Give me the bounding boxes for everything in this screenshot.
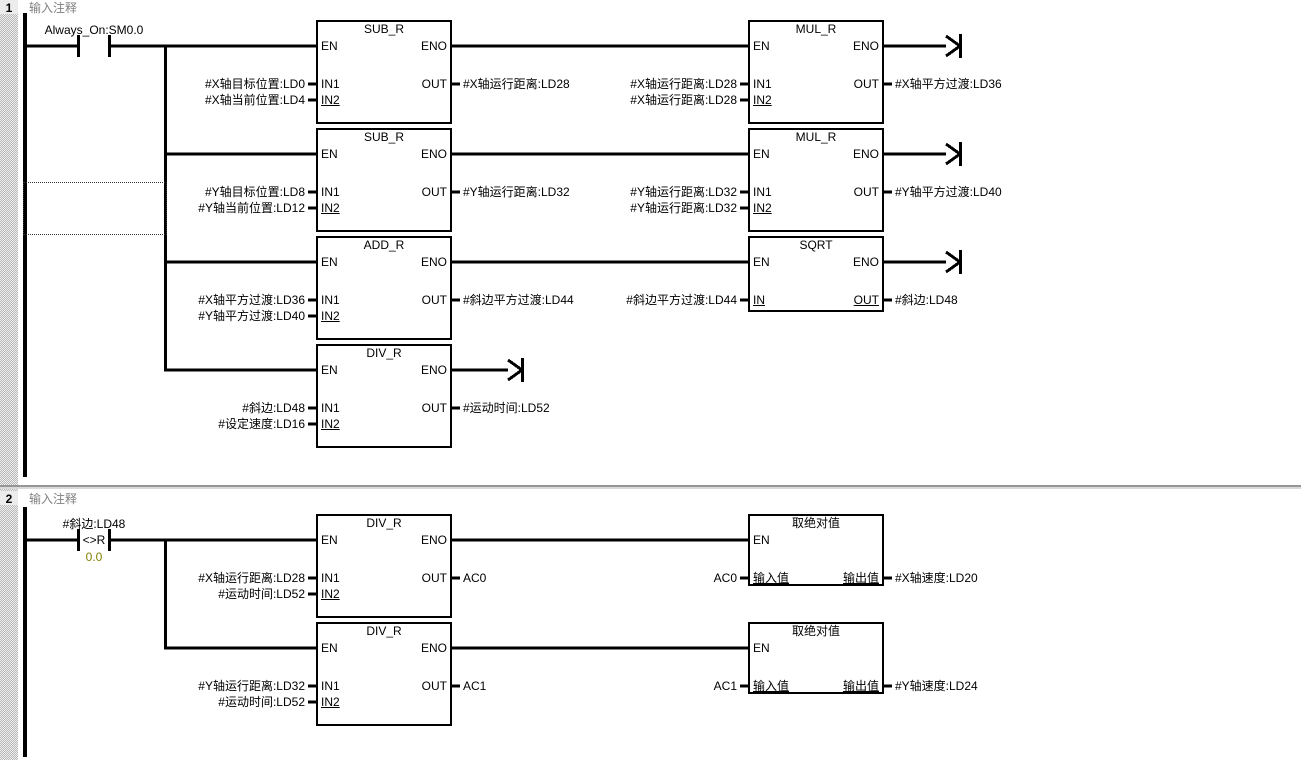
port-name: OUT	[127, 184, 447, 200]
port-name: OUT	[127, 678, 447, 694]
block-title: 取绝对值	[656, 515, 976, 531]
port-name: OUT	[127, 400, 447, 416]
input-operand[interactable]: #Y轴运行距离:LD32	[417, 200, 737, 216]
port-name: IN2	[321, 200, 340, 216]
output-operand[interactable]: #Y轴速度:LD24	[895, 678, 978, 694]
output-operand[interactable]: #运动时间:LD52	[463, 400, 550, 416]
port-eno: ENO	[127, 640, 447, 656]
block-title: 取绝对值	[656, 623, 976, 639]
block-title: ADD_R	[224, 237, 544, 253]
input-operand[interactable]: #运动时间:LD52	[0, 586, 305, 602]
port-name: IN2	[321, 92, 340, 108]
port-eno: ENO	[127, 146, 447, 162]
contact-operand[interactable]: Always_On:SM0.0	[0, 22, 254, 38]
input-operand[interactable]: #X轴当前位置:LD4	[0, 92, 305, 108]
block-title: SQRT	[656, 237, 976, 253]
output-operand[interactable]: #X轴速度:LD20	[895, 570, 978, 586]
compare-value[interactable]: 0.0	[0, 549, 254, 565]
port-eno: ENO	[127, 254, 447, 270]
diagram-nodes-layer: 1输入注释Always_On:SM0.0SUB_RENENOIN1#X轴目标位置…	[0, 0, 1301, 760]
port-eno: ENO	[559, 146, 879, 162]
ladder-editor-canvas: 1输入注释Always_On:SM0.0SUB_RENENOIN1#X轴目标位置…	[0, 0, 1301, 760]
block-title: SUB_R	[224, 129, 544, 145]
network-comment[interactable]: 输入注释	[29, 0, 77, 16]
port-name: 输出值	[559, 570, 879, 586]
input-operand[interactable]: #运动时间:LD52	[0, 694, 305, 710]
input-operand[interactable]: #设定速度:LD16	[0, 416, 305, 432]
selection-rectangle[interactable]	[23, 182, 167, 235]
block-title: DIV_R	[224, 515, 544, 531]
port-name: IN2	[321, 586, 340, 602]
port-eno: ENO	[559, 38, 879, 54]
port-en: EN	[753, 640, 770, 656]
port-name: OUT	[127, 292, 447, 308]
port-name: 输出值	[559, 678, 879, 694]
contact-operand[interactable]: #斜边:LD48	[0, 516, 254, 532]
output-operand[interactable]: #Y轴平方过渡:LD40	[895, 184, 1002, 200]
port-en: EN	[753, 532, 770, 548]
network-number: 1	[0, 0, 169, 16]
port-eno: ENO	[127, 38, 447, 54]
network-comment[interactable]: 输入注释	[29, 491, 77, 507]
port-name: IN2	[753, 200, 772, 216]
block-title: DIV_R	[224, 623, 544, 639]
block-title: DIV_R	[224, 345, 544, 361]
port-name: IN2	[321, 694, 340, 710]
port-name: OUT	[127, 76, 447, 92]
port-eno: ENO	[127, 362, 447, 378]
port-eno: ENO	[127, 532, 447, 548]
port-eno: ENO	[559, 254, 879, 270]
output-operand[interactable]: #X轴平方过渡:LD36	[895, 76, 1002, 92]
port-name: IN2	[321, 308, 340, 324]
port-name: OUT	[127, 570, 447, 586]
input-operand[interactable]: #X轴运行距离:LD28	[417, 92, 737, 108]
port-name: IN2	[753, 92, 772, 108]
port-name: IN2	[321, 416, 340, 432]
port-name: OUT	[559, 184, 879, 200]
block-title: MUL_R	[656, 129, 976, 145]
port-name: OUT	[559, 76, 879, 92]
output-operand[interactable]: #斜边:LD48	[895, 292, 958, 308]
block-title: MUL_R	[656, 21, 976, 37]
block-title: SUB_R	[224, 21, 544, 37]
network-number: 2	[0, 491, 169, 507]
port-name: OUT	[559, 292, 879, 308]
input-operand[interactable]: #Y轴平方过渡:LD40	[0, 308, 305, 324]
